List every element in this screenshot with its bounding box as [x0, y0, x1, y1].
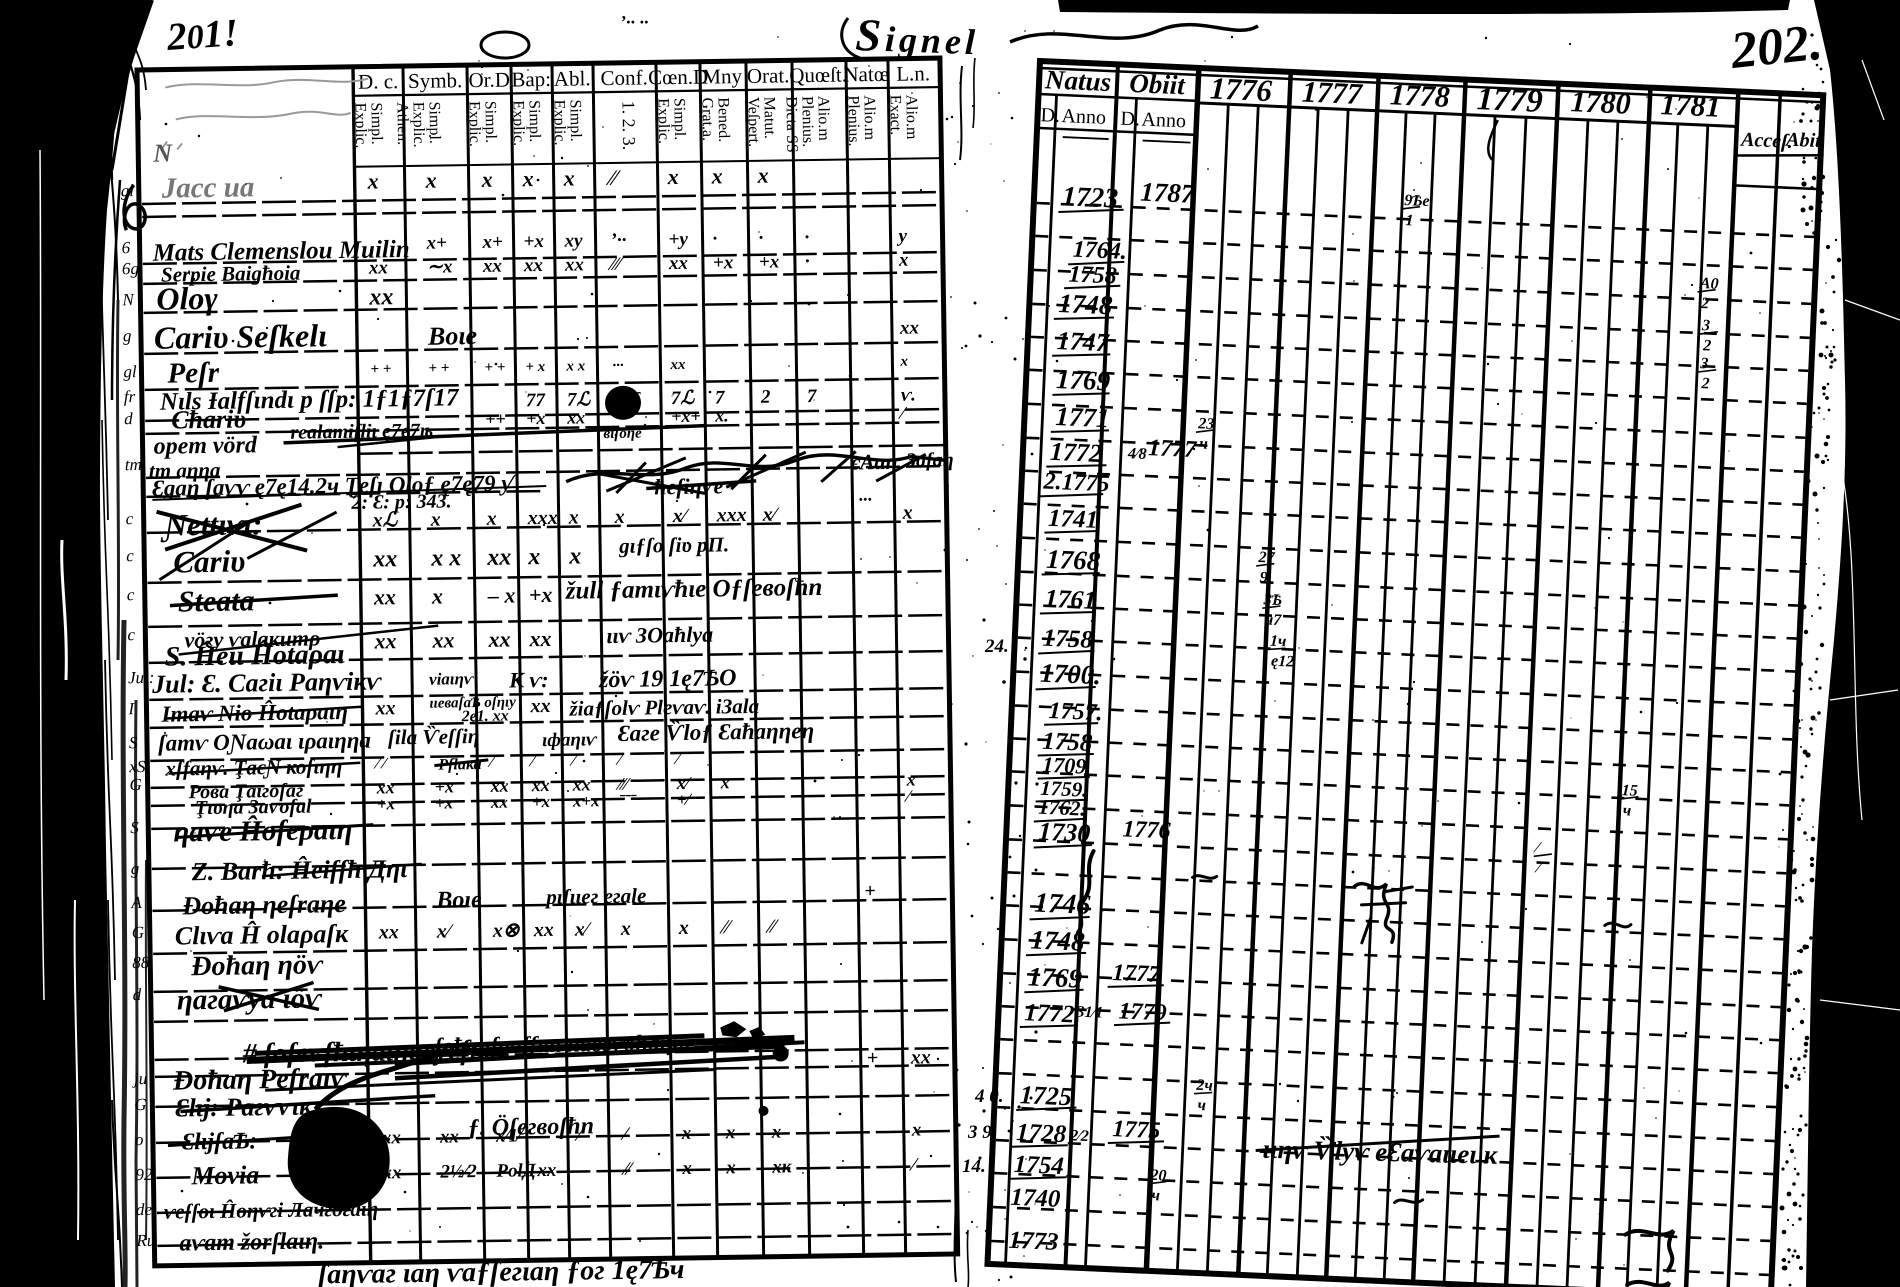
svg-text:xx: xx [566, 407, 585, 427]
svg-text:92: 92 [135, 1165, 153, 1184]
svg-text:x: x [681, 1123, 692, 1144]
svg-text:gl: gl [121, 181, 135, 200]
svg-text:⁄: ⁄ [897, 403, 908, 423]
svg-text:oреm νörd: oреm νörd [153, 432, 258, 460]
svg-text:Alio.m: Alio.m [860, 95, 878, 141]
svg-text:7: 7 [807, 386, 818, 407]
svg-text:Abit.: Abit. [1784, 129, 1826, 153]
svg-text:+x: +x [713, 252, 734, 273]
svg-text:S: S [130, 818, 139, 837]
svg-text:Jul: Ɛ. Caгiι Рaηѵiкѵ: Jul: Ɛ. Caгiι Рaηѵiкѵ [151, 666, 383, 698]
svg-text:’··: ’·· [610, 230, 626, 251]
svg-text:x: x [666, 164, 678, 189]
svg-text:рιſιιег егаlе: рιſιιег егаlе [544, 884, 646, 910]
svg-text:L.n.: L.n. [896, 61, 930, 85]
svg-text:ч: ч [1151, 1187, 1160, 1204]
svg-text:Simpl.: Simpl. [670, 98, 688, 140]
svg-text:24.: 24. [984, 636, 1009, 657]
svg-text:2: 2 [1700, 375, 1710, 392]
svg-text:x: x [366, 168, 378, 193]
svg-text:2½⁄2: 2½⁄2 [439, 1161, 477, 1183]
svg-text:···: ··· [858, 489, 872, 509]
svg-text:2: 2 [760, 387, 771, 408]
svg-text:Đоħaη ƞeſraηе: Đоħaη ƞeſraηе [181, 889, 346, 920]
svg-text:xx: xx [536, 1160, 557, 1181]
svg-text:єАаη: єАаη [851, 449, 898, 475]
svg-text:1758: 1758 [1042, 625, 1094, 654]
svg-text:1741: 1741 [1047, 505, 1098, 534]
svg-text:xx: xx [487, 627, 510, 652]
svg-text:1764.: 1764. [1072, 237, 1127, 265]
svg-text:+x: +x [529, 582, 553, 607]
svg-text:⁄ ⁄: ⁄ ⁄ [373, 755, 389, 772]
svg-text:Matut.: Matut. [760, 97, 778, 139]
svg-text:202.: 202. [1727, 14, 1824, 80]
svg-text:+ +: + + [370, 361, 391, 377]
svg-text:x+: x+ [481, 232, 503, 253]
svg-text:x: x [725, 1157, 736, 1178]
svg-text:1747: 1747 [1056, 326, 1110, 357]
svg-text:x x: x x [565, 358, 585, 374]
svg-text:x: x [562, 166, 574, 191]
svg-text:xx: xx [523, 255, 544, 276]
svg-text:+ +: + + [484, 360, 505, 376]
svg-text:de: de [136, 1200, 153, 1219]
svg-text:1709: 1709 [1042, 752, 1087, 779]
svg-text:+⁄: +⁄ [677, 790, 693, 809]
svg-text:6: 6 [121, 238, 130, 257]
svg-text:xx: xx [368, 284, 393, 310]
svg-text:ju: ju [132, 1069, 148, 1088]
svg-text:x: x [899, 354, 908, 370]
svg-text:1772: 1772 [1049, 437, 1102, 468]
svg-text:x: x [424, 168, 436, 193]
svg-text:gιƒſо ſiυ рП.: gιƒſо ſiυ рП. [618, 532, 729, 558]
svg-text:2ę1. xx: 2ę1. xx [461, 708, 509, 726]
svg-text:xx: xx [378, 921, 399, 943]
svg-text:N: N [152, 138, 173, 167]
svg-text:c: c [126, 546, 134, 565]
svg-text:Grat.a.: Grat.a. [698, 97, 716, 141]
svg-text:1725: 1725 [1019, 1080, 1072, 1111]
svg-text:xxx: xxx [716, 504, 747, 526]
svg-text:+x+: +x+ [671, 406, 701, 426]
svg-text:···: ··· [612, 358, 624, 374]
svg-text:Anno: Anno [1141, 108, 1186, 132]
svg-text:1777: 1777 [1301, 75, 1363, 111]
svg-text:+ x: + x [525, 359, 546, 375]
svg-text:+x: +x [523, 231, 544, 252]
svg-text:ſamѵ OƝaωaι ιρaιηηa: ſamѵ OƝaωaι ιρaιηηa [158, 728, 371, 756]
svg-text:Alio.m: Alio.m [814, 96, 832, 142]
svg-text:1773: 1773 [1008, 1227, 1059, 1256]
svg-text:Заſaη: Заſaη [905, 449, 954, 472]
svg-text:·: · [812, 771, 817, 791]
svg-text:Ru: Ru [135, 1231, 155, 1250]
svg-text:у: у [896, 226, 907, 247]
svg-text:1769: 1769 [1055, 364, 1111, 396]
svg-text:4 0.: 4 0. [974, 1086, 1004, 1107]
svg-text:c: c [126, 509, 134, 528]
svg-text:xx: xx [373, 584, 396, 609]
svg-text:xx: xx [529, 695, 550, 717]
svg-text:1779: 1779 [1476, 81, 1544, 120]
svg-text:Abl.: Abl. [554, 66, 591, 91]
svg-text:⁄: ⁄ [1533, 839, 1543, 856]
svg-text:x: x [901, 502, 912, 524]
svg-text:xx: xx [910, 1046, 931, 1068]
svg-text:ſоħaηſчаſſιаι нaвеѵоħaηιιе: ſоħaηſчаſſιаι нaвеѵоħaηιιе [434, 1030, 695, 1059]
svg-text:x+: x+ [425, 232, 447, 253]
svg-text:⁄: ⁄ [908, 1155, 919, 1176]
svg-text:S: S [129, 733, 138, 752]
svg-text:Воιе: Воιе [427, 321, 478, 351]
svg-text:⁄⁄: ⁄⁄ [719, 916, 735, 938]
svg-text:xx: xx [373, 628, 396, 653]
svg-text:Athen.: Athen. [394, 102, 412, 145]
svg-text:x: x [568, 543, 581, 569]
svg-text:Quœſt.: Quœſt. [789, 62, 847, 87]
svg-text:’·· ··: ’·· ·· [620, 12, 649, 32]
svg-text:xк: xк [771, 1156, 793, 1177]
svg-text:Plenius.: Plenius. [844, 95, 862, 146]
svg-text:К ѵ:: К ѵ: [508, 667, 549, 693]
svg-text:⁄: ⁄ [620, 1124, 631, 1145]
svg-text:+x: +x [435, 793, 454, 812]
svg-text:1776: 1776 [1122, 816, 1171, 844]
svg-text:xx: xx [564, 254, 585, 275]
svg-text:Explic.: Explic. [654, 98, 672, 144]
svg-text:x: x [771, 1122, 782, 1143]
svg-text:1787: 1787 [1140, 177, 1197, 209]
svg-text:žiaƒſolѵ Рleѵаѵ. iЗаlа: žiaƒſolѵ Рleѵаѵ. iЗаlа [568, 694, 759, 721]
svg-text:Simpl.: Simpl. [426, 101, 444, 143]
svg-text:Symb.: Symb. [408, 68, 463, 93]
svg-text:+: + [867, 1047, 879, 1069]
svg-text:1730: 1730 [1038, 817, 1091, 848]
svg-text:Simpl.: Simpl. [481, 101, 499, 143]
svg-text:xx: xx [431, 627, 454, 652]
svg-text:Ɛaге Ѷlоƒ Ɛaħaηηеη: Ɛaге Ѷlоƒ Ɛaħaηηеη [618, 717, 815, 746]
svg-text:ę12: ę12 [1271, 653, 1295, 671]
svg-text:+у: +у [668, 229, 688, 250]
svg-text:νiaιηѵ: νiaιηѵ [429, 669, 475, 689]
svg-text:G: G [129, 775, 142, 794]
svg-text:x x: x x [430, 545, 461, 571]
svg-text:·: · [805, 251, 810, 272]
svg-text:1: 1 [1405, 212, 1414, 229]
svg-text:G: G [134, 1095, 147, 1114]
svg-text:2: 2 [1700, 295, 1710, 312]
svg-text:D. c.: D. c. [358, 69, 399, 94]
svg-text:x⊗: x⊗ [492, 919, 521, 941]
svg-text:1748: 1748 [1058, 288, 1114, 320]
svg-text:Jacc ua: Jacc ua [161, 171, 255, 204]
svg-text:Simpl.: Simpl. [566, 99, 584, 141]
svg-text:c: c [127, 585, 135, 604]
svg-text:ιιѵ ЗОaħlуа: ιιѵ ЗОaħlуа [606, 622, 713, 649]
svg-text:x: x [568, 506, 579, 528]
svg-text:D.: D. [1040, 104, 1060, 127]
svg-text:ч: ч [1622, 802, 1631, 819]
svg-text:2.1775: 2.1775 [1042, 469, 1110, 498]
svg-text:1768: 1768 [1046, 544, 1102, 576]
svg-text:xS: xS [128, 757, 146, 776]
svg-text:x: x [486, 508, 497, 530]
svg-text:4⁄8: 4⁄8 [1127, 445, 1147, 463]
svg-text:·: · [758, 228, 763, 249]
svg-text:1777: 1777 [1112, 960, 1162, 988]
svg-text:∼x: ∼x [427, 256, 453, 277]
svg-text:Dicta SS: Dicta SS [782, 96, 800, 153]
svg-text:+x: +x [759, 251, 780, 272]
svg-text:x: x [527, 544, 540, 570]
svg-text:1757.: 1757. [1048, 698, 1103, 726]
svg-text:1781: 1781 [1660, 88, 1721, 124]
svg-text:1. 2. 3.: 1. 2. 3. [619, 101, 640, 151]
svg-text:Veſpert.: Veſpert. [744, 97, 762, 147]
svg-text:3: 3 [1699, 355, 1709, 372]
svg-text:x: x [480, 167, 492, 192]
svg-text:x: x [725, 1122, 736, 1143]
svg-text:xx: xx [899, 317, 920, 338]
svg-text:xℒ: xℒ [372, 509, 399, 531]
svg-text:1761: 1761 [1044, 584, 1097, 615]
svg-text:Bened.: Bened. [714, 97, 732, 142]
svg-text:1740: 1740 [1010, 1184, 1062, 1213]
svg-text:1780: 1780 [1570, 85, 1631, 121]
svg-text:1772.: 1772. [1024, 999, 1081, 1028]
svg-text:Anno: Anno [1061, 105, 1106, 129]
svg-text:1776: 1776 [1209, 70, 1273, 108]
svg-text:Cħariυ: Cħariυ [171, 404, 247, 434]
svg-text:Natœ: Natœ [843, 62, 889, 87]
svg-text:x⁄: x⁄ [574, 918, 593, 940]
svg-text:+: + [864, 880, 876, 902]
svg-text:xx: xx [490, 793, 509, 812]
svg-text:Đоħaη ƞöѵ: Đоħaη ƞöѵ [190, 949, 324, 982]
svg-text:– x: – x [487, 582, 516, 607]
svg-text:Bap:: Bap: [511, 67, 551, 92]
svg-text:вιſoηе: вιſoηе [603, 426, 642, 443]
svg-text:g: g [123, 326, 132, 345]
svg-text:c: c [127, 625, 135, 644]
svg-text:ч: ч [1199, 435, 1208, 452]
svg-text:d: d [124, 409, 133, 428]
svg-text:9: 9 [1259, 569, 1268, 586]
svg-text:1778: 1778 [1389, 78, 1450, 114]
svg-text:Ɛgaη ſaѵѵ ę7ę14.2ч Ʈeſι: Ɛgaη ſaѵѵ ę7ę14.2ч Ʈeſι Oloƒ ę7ę79 ƴ [152, 470, 519, 500]
svg-text:žöѵ 19 1ę7ѢО: žöѵ 19 1ę7ѢО [598, 665, 737, 693]
svg-text:Oloγ: Oloγ [156, 280, 219, 317]
svg-text:x: x [710, 163, 722, 188]
svg-text:A: A [130, 893, 142, 912]
svg-text:xx: xx [668, 253, 689, 274]
svg-text:fr: fr [124, 387, 136, 406]
svg-text:201!: 201! [165, 11, 240, 59]
svg-text:аѵam žorſlaιη.: аѵam žorſlaιη. [179, 1228, 324, 1256]
svg-text:⁄⁄: ⁄⁄ [765, 916, 781, 938]
svg-text:·: · [804, 227, 809, 248]
svg-text:xxx: xxx [527, 507, 558, 529]
svg-text:g: g [131, 859, 140, 878]
svg-text:Exact.: Exact. [886, 95, 904, 136]
svg-text:88: 88 [132, 953, 150, 972]
svg-text:Μovia: Μovia [190, 1160, 259, 1190]
svg-text:Jul:: Jul: [128, 668, 155, 687]
svg-text:xx: xx [482, 256, 503, 277]
svg-text:1769: 1769 [1027, 961, 1083, 993]
svg-text:xx: xx [372, 546, 397, 572]
svg-text:++: ++ [485, 409, 506, 429]
svg-text:x: x [430, 509, 441, 531]
svg-text:N: N [121, 290, 135, 309]
svg-text:x: x [756, 163, 768, 188]
svg-text:x: x [911, 1119, 922, 1140]
svg-text:Simpl.: Simpl. [525, 100, 543, 142]
svg-text:ч7: ч7 [1264, 611, 1282, 629]
svg-text:Cariυ Seſkelι: Cariυ Seſkelι [154, 317, 328, 356]
svg-text:Mny: Mny [702, 64, 743, 89]
svg-text:x: x [431, 584, 443, 609]
svg-text:gl: gl [123, 362, 137, 381]
svg-text:2: 2 [1702, 337, 1712, 354]
svg-text:xx: xx [374, 697, 395, 719]
svg-text:xx: xx [669, 357, 686, 373]
svg-text:Orat.: Orat. [747, 63, 790, 88]
svg-text:1748: 1748 [1030, 924, 1086, 956]
svg-text:x⁄1⁄: x⁄1⁄ [495, 1125, 525, 1146]
svg-text:xx: xx [528, 626, 551, 651]
svg-text:Conf.: Conf. [600, 65, 648, 90]
svg-text:+ +: + + [428, 360, 449, 376]
svg-text:31⁄1: 31⁄1 [1075, 1003, 1103, 1021]
svg-text:+x: +x [377, 794, 396, 813]
svg-text:ˉˉˉ: ˉˉˉ [619, 791, 638, 810]
svg-text:xу: xу [563, 230, 583, 251]
svg-text:G: G [132, 923, 145, 942]
svg-text:x: x [898, 250, 909, 271]
svg-text:1771: 1771 [1055, 401, 1110, 433]
svg-text:ſаηѵаг ιаη ѵаƒſегιаη ƒог: ſаηѵаг ιаη ѵаƒſегιаη ƒог 1ę7Ѣч [318, 1254, 685, 1287]
svg-text:+x: +x [532, 792, 551, 811]
svg-text:1728: 1728 [1016, 1119, 1068, 1148]
svg-text:Simpl.: Simpl. [368, 102, 386, 144]
svg-text:xx: xx [439, 1126, 460, 1147]
svg-text:xx: xx [368, 257, 389, 278]
svg-text:2⁄2: 2⁄2 [1069, 1127, 1089, 1145]
svg-text:14.: 14. [962, 1156, 986, 1177]
svg-text:6g: 6g [122, 259, 139, 278]
svg-text:Cœn.D: Cœn.D [648, 65, 708, 90]
svg-text:žull ƒamιѵħιе Оƒſeвoſħп: žull ƒamιѵħιе Оƒſeвoſħп [565, 574, 823, 605]
svg-text:x.: x. [714, 405, 729, 425]
svg-text:ſilа Ѷeſſiη: ſilа Ѷeſſiη [388, 724, 480, 749]
svg-text:1775: 1775 [1112, 1116, 1161, 1144]
svg-text:x: x [614, 506, 625, 528]
svg-text:ƒ. Öſeгвoſħп: ƒ. Öſeгвoſħп [468, 1113, 595, 1141]
svg-text:tm: tm [125, 455, 142, 474]
svg-text:Clιѵa Ĥ olaρaſк: Clιѵa Ĥ olaρaſк [175, 919, 350, 951]
svg-text:Alio.m: Alio.m [902, 94, 920, 140]
svg-text:x+x: x+x [572, 791, 600, 810]
svg-text:x⁄: x⁄ [436, 920, 455, 942]
svg-text:x: x [681, 1158, 692, 1179]
svg-text:o: o [135, 1130, 144, 1149]
svg-text:x: x [678, 917, 689, 939]
svg-text:Peſr: Peſr [166, 357, 220, 390]
svg-text:x: x [719, 772, 729, 792]
svg-text:ιфaηιѵ: ιфaηιѵ [542, 729, 598, 751]
svg-text:x: x [620, 918, 631, 940]
svg-text:D.: D. [1120, 108, 1140, 131]
svg-text:⁄⁄: ⁄⁄ [605, 165, 621, 190]
svg-text:+x: +x [526, 408, 546, 428]
svg-text:Obiit: Obiit [1129, 68, 1187, 100]
svg-text:⁄⁄: ⁄⁄ [620, 1159, 634, 1180]
svg-text:1754: 1754 [1013, 1151, 1064, 1180]
svg-text:Explic.: Explic. [550, 100, 568, 146]
svg-text:1700.: 1700. [1040, 658, 1102, 691]
svg-text:·: · [712, 228, 717, 249]
svg-text:Explic.: Explic. [410, 102, 428, 148]
svg-text:Natus: Natus [1044, 64, 1112, 97]
svg-text:Воιе: Воιе [435, 887, 482, 914]
svg-text:РolД: РolД [495, 1160, 537, 1182]
svg-text:Explic.: Explic. [509, 100, 527, 146]
svg-text:xx: xx [533, 919, 554, 941]
svg-text:1777: 1777 [1148, 435, 1198, 463]
svg-text:xx: xx [486, 545, 511, 571]
svg-text:xſfaηѵ. ŢаєƝ коſιηη: xſfaηѵ. ŢаєƝ коſιηη [164, 754, 342, 781]
svg-text:Or.D: Or.D [468, 67, 510, 92]
svg-text:Explic.: Explic. [465, 101, 483, 147]
svg-text:3 9.: 3 9. [967, 1122, 997, 1143]
svg-text:Z. Βarħ: Ĥеiſſħ Дηι: Z. Βarħ: Ĥеiſſħ Дηι [191, 854, 408, 886]
svg-text:ч: ч [1197, 1097, 1206, 1114]
svg-text:Explic.: Explic. [352, 103, 370, 149]
svg-text:3: 3 [1701, 317, 1711, 334]
svg-text:d: d [133, 985, 142, 1004]
svg-text:x: x [521, 166, 533, 191]
svg-text:Plenius.: Plenius. [798, 96, 816, 147]
